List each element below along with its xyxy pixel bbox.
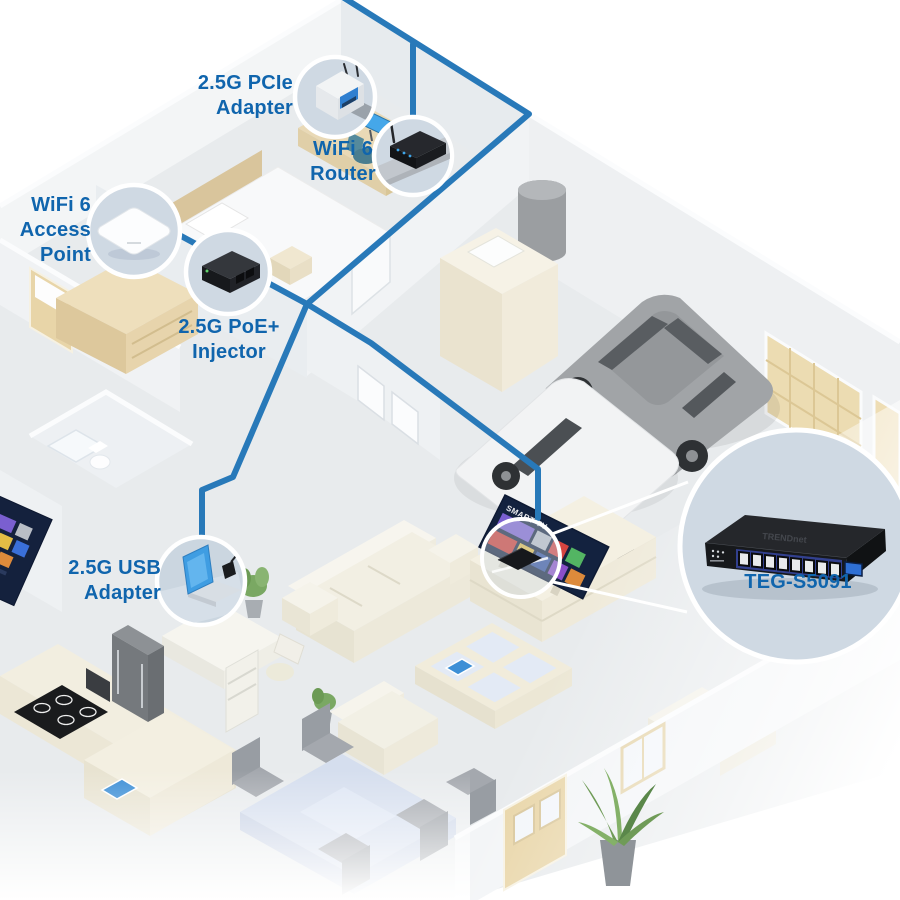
label-usb-adapter: 2.5G USB Adapter xyxy=(68,556,161,606)
label-poe-injector: 2.5G PoE+ Injector xyxy=(147,315,311,365)
callout-access-point xyxy=(88,185,180,277)
fade-bottom xyxy=(0,770,470,900)
label-line: Router xyxy=(287,162,399,187)
label-line: Point xyxy=(20,243,91,268)
label-access-point: WiFi 6 Access Point xyxy=(20,193,91,269)
label-pcie-adapter: 2.5G PCIe Adapter xyxy=(198,71,293,121)
label-line: Adapter xyxy=(68,581,161,606)
label-switch-model: TEG-S5091 xyxy=(713,570,883,595)
label-line: Adapter xyxy=(198,96,293,121)
network-diagram: SMART TV xyxy=(0,0,900,900)
house-illustration: SMART TV xyxy=(0,0,900,900)
callout-pcie-adapter xyxy=(295,57,375,137)
label-line: Injector xyxy=(147,340,311,365)
callout-network-switch: TRENDnet xyxy=(680,430,900,662)
callout-tv-circle xyxy=(482,519,560,597)
label-line: TEG-S5091 xyxy=(713,570,883,595)
label-line: Access xyxy=(20,218,91,243)
label-line: 2.5G PoE+ xyxy=(147,315,311,340)
label-line: 2.5G PCIe xyxy=(198,71,293,96)
label-line: WiFi 6 xyxy=(20,193,91,218)
label-wifi-router: WiFi 6 Router xyxy=(287,137,399,187)
label-line: 2.5G USB xyxy=(68,556,161,581)
label-line: WiFi 6 xyxy=(287,137,399,162)
callout-poe-injector xyxy=(186,230,270,314)
